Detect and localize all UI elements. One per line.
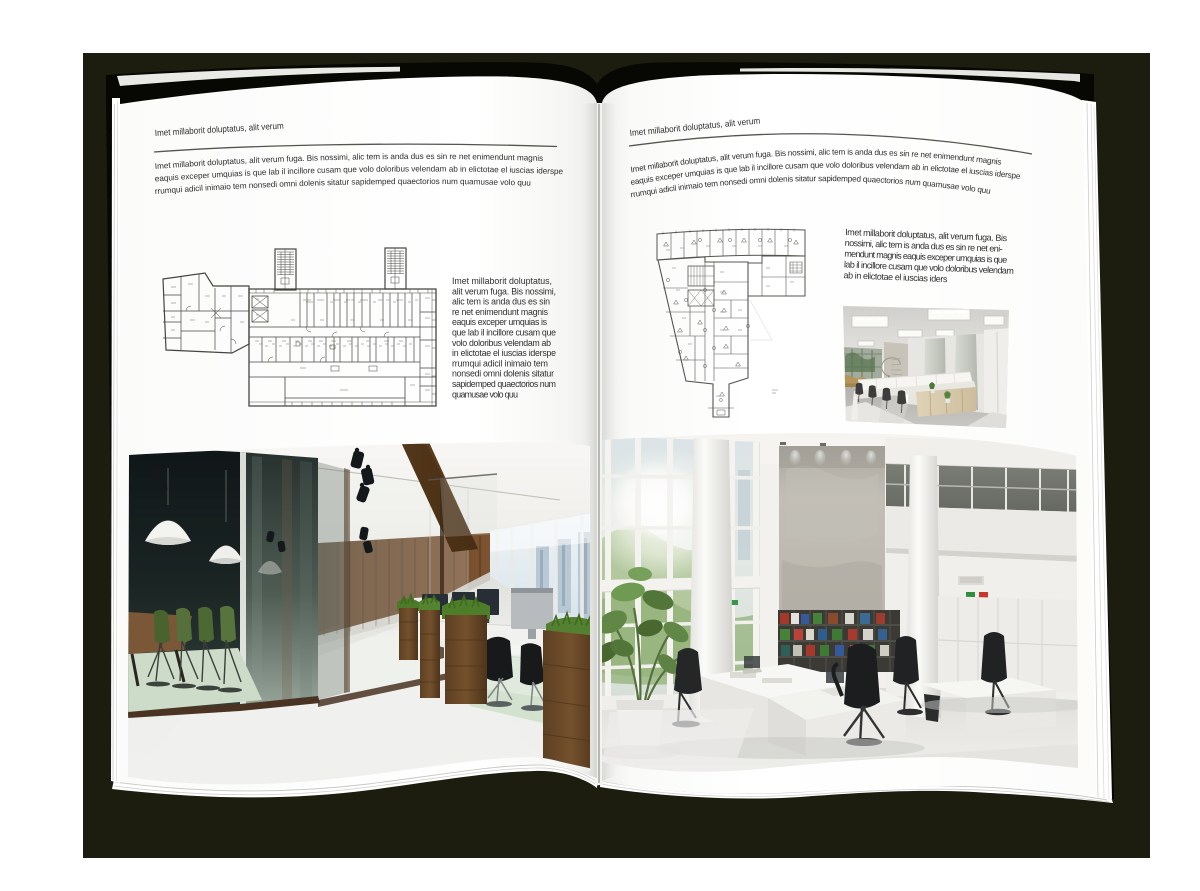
svg-text:rrumqui adicil inimaio tem: rrumqui adicil inimaio tem [452,358,548,368]
svg-text:nonsedi omni dolenis sitatur: nonsedi omni dolenis sitatur [452,369,554,379]
svg-text:alit verum fuga. Bis nossimi,: alit verum fuga. Bis nossimi, [452,286,556,296]
svg-text:in elictotae el iuscias idersp: in elictotae el iuscias iderspe [452,348,556,358]
svg-text:quamusae volo quu: quamusae volo quu [452,389,518,399]
svg-text:alic tem is anda dus es sin: alic tem is anda dus es sin [452,297,550,307]
svg-text:sapidemped quaectorios num: sapidemped quaectorios num [452,379,556,389]
svg-text:que lab il incillore cusam que: que lab il incillore cusam que [452,328,556,338]
svg-text:eaquis exceper umquias is: eaquis exceper umquias is [452,317,548,327]
svg-text:volo doloribus velendam ab: volo doloribus velendam ab [452,338,551,348]
svg-text:re net enimendunt magnis: re net enimendunt magnis [452,307,549,317]
svg-text:Imet millaborit doluptatus,: Imet millaborit doluptatus, [452,276,552,286]
